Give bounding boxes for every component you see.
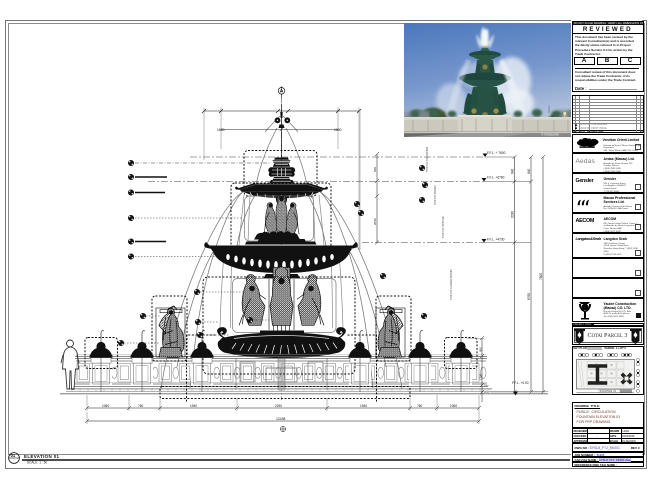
svg-text:840: 840 [527, 168, 531, 174]
svg-text:840: 840 [373, 167, 377, 172]
svg-text:1060: 1060 [450, 404, 457, 408]
svg-text:TOP OF STATUE: TOP OF STATUE [441, 216, 445, 238]
svg-text:12438: 12438 [276, 417, 286, 421]
svg-text:-: - [11, 460, 12, 464]
svg-text:1650: 1650 [334, 128, 342, 132]
svg-text:840: 840 [511, 168, 515, 174]
svg-text:F.F.L. + 7600: F.F.L. + 7600 [487, 151, 506, 155]
svg-text:1760: 1760 [479, 373, 483, 380]
svg-text:1940: 1940 [190, 404, 197, 408]
svg-text:6760: 6760 [527, 293, 531, 300]
svg-text:F.F.L. +4730: F.F.L. +4730 [487, 238, 505, 242]
svg-text:F.F.L. +6760: F.F.L. +6760 [487, 176, 505, 180]
svg-text:© fotosearch: © fotosearch [541, 133, 559, 137]
svg-text:TOP OF FOUNTAIN: TOP OF FOUNTAIN [425, 147, 429, 172]
svg-text:450: 450 [479, 347, 483, 352]
svg-text:SCALE 1 : 50: SCALE 1 : 50 [27, 461, 47, 465]
svg-text:1940: 1940 [360, 404, 367, 408]
svg-text:ELEVATION 01: ELEVATION 01 [24, 454, 60, 459]
svg-text:1650: 1650 [217, 128, 225, 132]
svg-text:760: 760 [417, 404, 423, 408]
svg-text:760: 760 [138, 404, 144, 408]
svg-text:2250: 2250 [275, 404, 282, 408]
svg-text:7600: 7600 [539, 273, 543, 280]
svg-text:TOP OF LOWER BASIN: TOP OF LOWER BASIN [449, 269, 453, 300]
svg-text:1060: 1060 [102, 404, 109, 408]
svg-text:TOP OF BASIN: TOP OF BASIN [433, 186, 437, 205]
svg-text:2030: 2030 [373, 218, 377, 225]
svg-text:01: 01 [11, 453, 16, 458]
svg-text:2030: 2030 [511, 211, 515, 218]
